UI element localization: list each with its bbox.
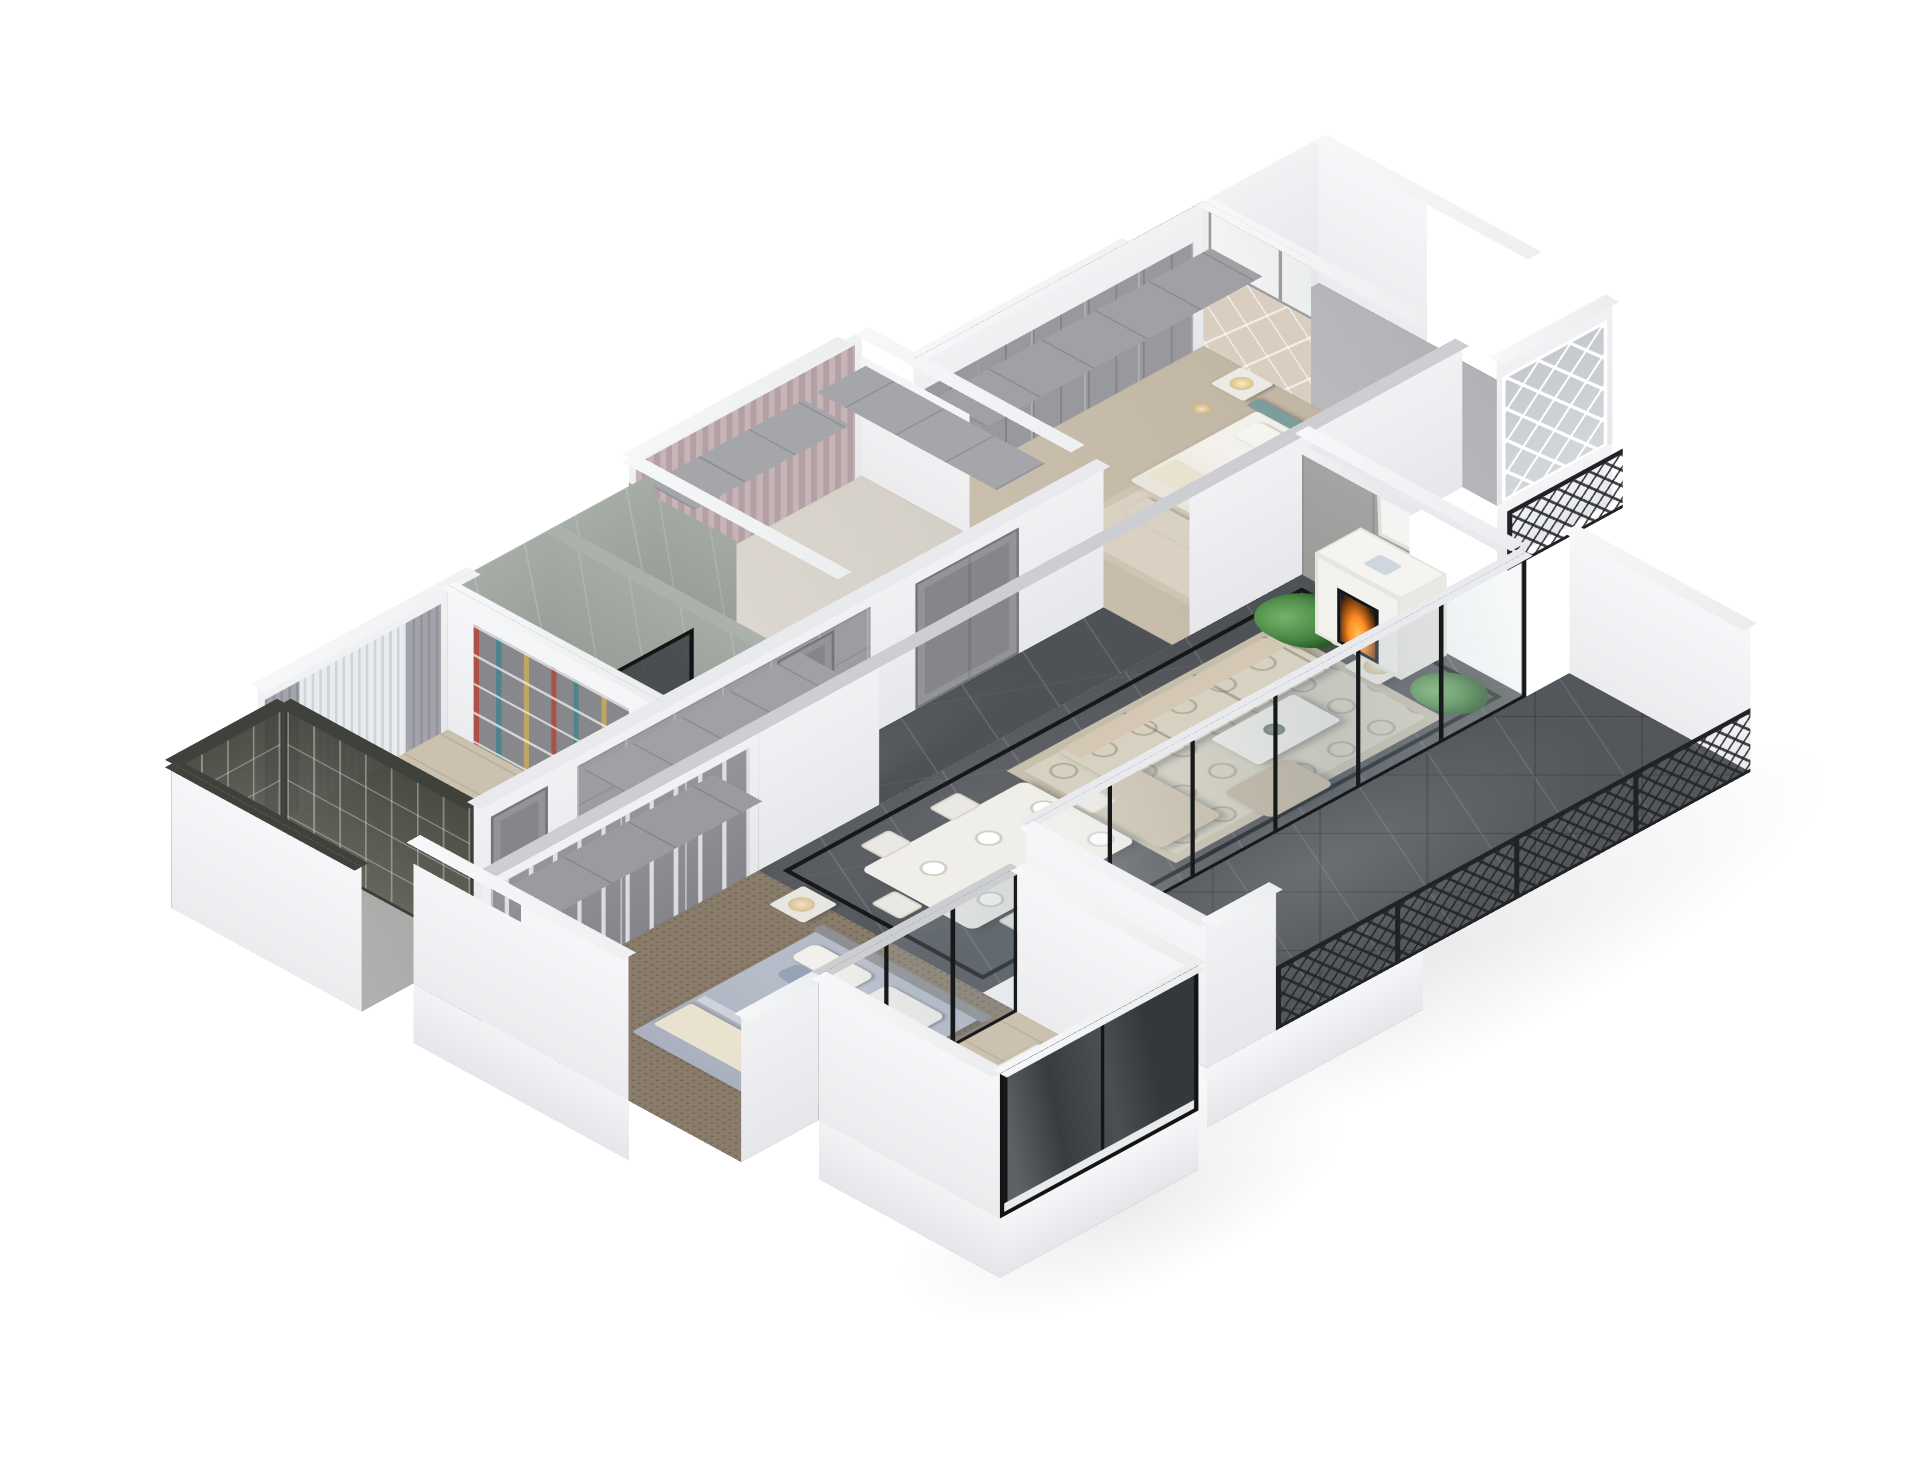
mantel-decor [1363, 554, 1403, 576]
floor-lamp [1188, 401, 1216, 416]
render-canvas [0, 0, 1920, 1468]
